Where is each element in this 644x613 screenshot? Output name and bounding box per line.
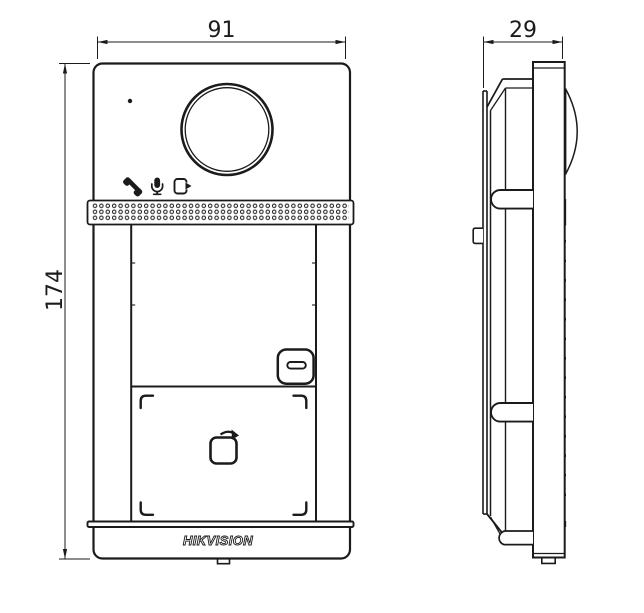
mounting-clip-foot bbox=[499, 531, 533, 545]
mounting-clip-bottom bbox=[491, 403, 533, 422]
camera-dome-profile bbox=[565, 89, 577, 175]
side-bottom-notch bbox=[542, 558, 555, 564]
side-view bbox=[473, 62, 577, 563]
depth-dimension-label: 29 bbox=[509, 18, 537, 43]
width-dimension: 91 bbox=[98, 18, 346, 59]
side-front-slab bbox=[533, 62, 565, 558]
mounting-plate bbox=[483, 91, 487, 514]
intercom-technical-drawing: HIKVISION bbox=[0, 0, 644, 613]
front-view: HIKVISION bbox=[88, 64, 354, 564]
width-dimension-label: 91 bbox=[208, 18, 236, 43]
wall-bracket-tab bbox=[473, 228, 483, 243]
height-dimension: 174 bbox=[43, 64, 90, 560]
technical-drawing-canvas: HIKVISION bbox=[0, 0, 644, 613]
side-housing bbox=[487, 79, 533, 537]
bottom-trim-band bbox=[88, 522, 354, 528]
height-dimension-label: 174 bbox=[43, 269, 68, 311]
hikvision-logo: HIKVISION bbox=[183, 533, 253, 548]
mounting-clip-top bbox=[491, 190, 533, 209]
speaker-grille bbox=[88, 201, 354, 225]
microphone-hole bbox=[128, 99, 132, 103]
